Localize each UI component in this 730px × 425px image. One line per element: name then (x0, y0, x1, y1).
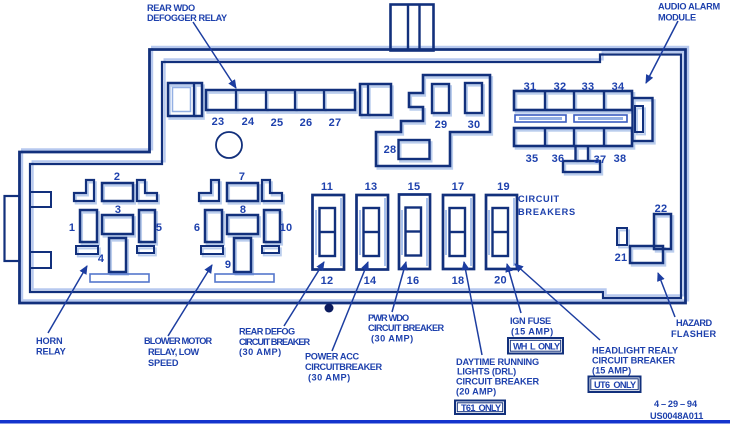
svg-text:25: 25 (271, 117, 284, 129)
svg-text:16: 16 (407, 275, 420, 287)
svg-text:15: 15 (408, 181, 421, 193)
svg-text:CIRCUIT BREAKER: CIRCUIT BREAKER (368, 323, 445, 333)
svg-text:CIRCUIT BREAKER: CIRCUIT BREAKER (239, 337, 311, 347)
svg-text:LIGHTS (DRL): LIGHTS (DRL) (457, 367, 516, 377)
svg-text:27: 27 (329, 117, 342, 129)
svg-text:(15 AMP): (15 AMP) (592, 366, 631, 376)
svg-text:6: 6 (194, 222, 200, 234)
svg-text:RELAY: RELAY (36, 347, 66, 357)
svg-text:PWR WDO: PWR WDO (368, 313, 409, 323)
svg-text:DAYTIME RUNNING: DAYTIME RUNNING (456, 357, 539, 367)
svg-text:CIRCUIT BREAKER: CIRCUIT BREAKER (592, 356, 676, 366)
svg-text:4: 4 (98, 253, 105, 265)
svg-text:7: 7 (239, 171, 245, 183)
svg-text:21: 21 (615, 252, 628, 264)
svg-text:30: 30 (468, 119, 481, 131)
svg-text:2: 2 (114, 171, 120, 183)
svg-text:SPEED: SPEED (148, 358, 179, 368)
svg-text:17: 17 (452, 181, 465, 193)
svg-text:24: 24 (242, 116, 255, 128)
svg-text:CIRCUIT BREAKER: CIRCUIT BREAKER (456, 377, 540, 387)
svg-text:18: 18 (452, 275, 465, 287)
svg-text:9: 9 (225, 259, 231, 271)
svg-text:5: 5 (156, 222, 162, 234)
svg-text:11: 11 (321, 181, 333, 193)
svg-text:CIRCUITBREAKER: CIRCUITBREAKER (305, 362, 383, 372)
svg-text:33: 33 (582, 81, 595, 93)
svg-text:(20 AMP): (20 AMP) (456, 387, 496, 397)
svg-text:10: 10 (280, 222, 293, 234)
svg-text:37: 37 (594, 154, 607, 166)
svg-text:BREAKERS: BREAKERS (518, 207, 575, 217)
svg-text:DEFOGGER RELAY: DEFOGGER RELAY (147, 13, 227, 23)
svg-text:31: 31 (524, 81, 537, 93)
svg-text:(15 AMP): (15 AMP) (511, 327, 553, 337)
svg-text:12: 12 (321, 275, 334, 287)
svg-text:19: 19 (497, 181, 510, 193)
svg-text:4 – 29 – 94: 4 – 29 – 94 (654, 399, 698, 409)
svg-text:MODULE: MODULE (658, 12, 696, 22)
svg-text:35: 35 (526, 153, 539, 165)
svg-text:FLASHER: FLASHER (671, 329, 717, 339)
svg-text:(30 AMP): (30 AMP) (371, 334, 413, 344)
svg-text:(30 AMP): (30 AMP) (308, 373, 350, 383)
svg-text:3: 3 (115, 204, 121, 216)
svg-text:REAR DEFOG: REAR DEFOG (239, 327, 295, 337)
svg-text:1: 1 (69, 222, 75, 234)
svg-text:8: 8 (240, 204, 246, 216)
svg-text:36: 36 (552, 153, 565, 165)
svg-text:26: 26 (300, 117, 313, 129)
svg-text:IGN FUSE: IGN FUSE (510, 316, 551, 326)
svg-text:(30 AMP): (30 AMP) (239, 347, 281, 357)
svg-text:13: 13 (365, 181, 378, 193)
svg-text:29: 29 (435, 119, 448, 131)
svg-text:BLOWER MOTOR: BLOWER MOTOR (144, 336, 213, 346)
svg-text:UT6 ONLY: UT6 ONLY (594, 380, 636, 390)
svg-text:CIRCUIT: CIRCUIT (518, 194, 560, 204)
svg-text:REAR WDO: REAR WDO (147, 3, 195, 13)
svg-text:22: 22 (655, 203, 668, 215)
svg-text:HAZARD: HAZARD (676, 318, 713, 328)
svg-text:20: 20 (494, 275, 507, 287)
svg-text:34: 34 (612, 81, 625, 93)
svg-text:POWER ACC: POWER ACC (305, 352, 360, 362)
svg-text:38: 38 (614, 153, 627, 165)
svg-text:WH L ONLY: WH L ONLY (513, 342, 560, 352)
svg-text:US0048A011: US0048A011 (650, 411, 703, 421)
svg-text:14: 14 (364, 275, 377, 287)
svg-text:T61 ONLY: T61 ONLY (461, 403, 501, 413)
svg-text:AUDIO ALARM: AUDIO ALARM (658, 2, 720, 12)
svg-text:23: 23 (212, 116, 225, 128)
svg-text:HEADLIGHT REALY: HEADLIGHT REALY (592, 346, 678, 356)
svg-text:32: 32 (554, 81, 567, 93)
svg-text:RELAY, LOW: RELAY, LOW (148, 347, 199, 357)
svg-text:28: 28 (384, 144, 397, 156)
svg-text:HORN: HORN (36, 336, 63, 346)
